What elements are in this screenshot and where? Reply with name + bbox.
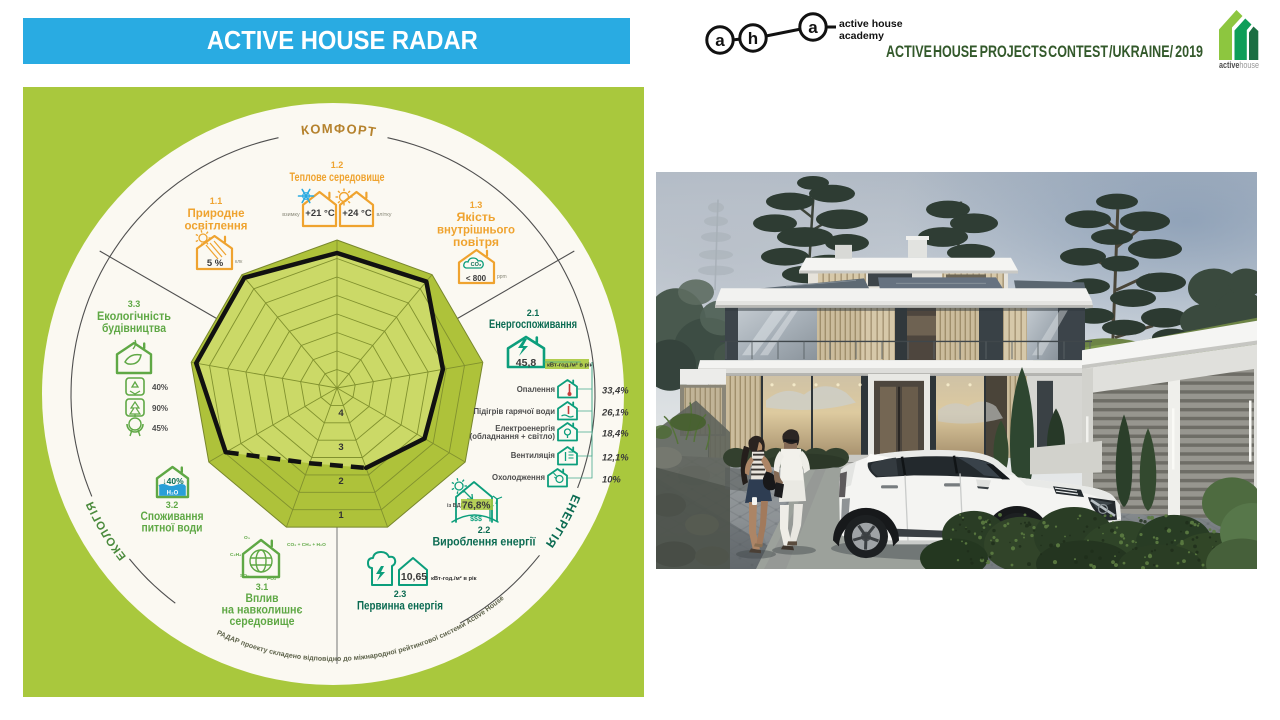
svg-text:10,65: 10,65 xyxy=(401,571,427,583)
svg-text:влітку: влітку xyxy=(377,212,392,218)
svg-text:O₃: O₃ xyxy=(244,535,250,541)
svg-text:3.3: 3.3 xyxy=(128,299,141,309)
svg-text:Охолодження: Охолодження xyxy=(492,473,545,482)
svg-text:клк: клк xyxy=(235,259,243,265)
svg-text:3: 3 xyxy=(338,442,343,453)
svg-text:↓40%: ↓40% xyxy=(162,476,184,486)
svg-text:90%: 90% xyxy=(152,404,168,413)
svg-text:active house: active house xyxy=(839,18,903,30)
svg-text:1.1: 1.1 xyxy=(210,196,223,206)
svg-text:activehouse: activehouse xyxy=(1219,60,1259,70)
svg-text:SO₂: SO₂ xyxy=(240,573,249,579)
svg-text:CO₂: CO₂ xyxy=(471,262,482,268)
svg-text:45,8: 45,8 xyxy=(516,357,537,369)
svg-text:1: 1 xyxy=(338,510,344,521)
svg-text:a: a xyxy=(808,18,818,37)
svg-text:40%: 40% xyxy=(152,383,168,392)
svg-text:2.3: 2.3 xyxy=(394,589,407,599)
svg-text:H₂O: H₂O xyxy=(167,491,179,497)
svg-text:1.3: 1.3 xyxy=(470,200,483,210)
svg-text:Вироблення енергії: Вироблення енергії xyxy=(433,537,537,549)
svg-text:3.1: 3.1 xyxy=(256,582,269,592)
svg-text:C₂H₄: C₂H₄ xyxy=(230,552,242,558)
svg-text:будівництва: будівництва xyxy=(102,323,167,335)
svg-text:Природне: Природне xyxy=(188,208,245,220)
svg-text:3.2: 3.2 xyxy=(166,500,179,510)
svg-text:ACTIVE HOUSE PROJECTS CONTEST: ACTIVE HOUSE PROJECTS CONTEST /UKRAINE/ … xyxy=(886,43,1203,61)
svg-text:12,1%: 12,1% xyxy=(602,452,629,463)
svg-text:5 %: 5 % xyxy=(207,258,224,269)
svg-text:10%: 10% xyxy=(602,474,621,485)
svg-text:ppm: ppm xyxy=(497,274,507,280)
svg-text:Енергоспоживання: Енергоспоживання xyxy=(489,319,577,331)
svg-text:(обладнання + світло): (обладнання + світло) xyxy=(470,432,556,441)
svg-text:Якість: Якість xyxy=(457,212,496,224)
svg-text:повітря: повітря xyxy=(453,237,499,249)
svg-text:кВт-год./м² в рік: кВт-год./м² в рік xyxy=(547,362,593,369)
svg-text:academy: academy xyxy=(839,30,884,42)
svg-text:Первинна енергія: Первинна енергія xyxy=(357,601,443,613)
svg-text:Опалення: Опалення xyxy=(517,385,555,394)
svg-text:+24 °C: +24 °C xyxy=(342,208,372,219)
svg-text:33,4%: 33,4% xyxy=(602,385,629,396)
svg-text:76,8%: 76,8% xyxy=(462,501,490,512)
svg-text:45%: 45% xyxy=(152,424,168,433)
svg-text:Споживання: Споживання xyxy=(141,511,204,523)
svg-text:Вентиляція: Вентиляція xyxy=(511,451,555,460)
svg-text:a: a xyxy=(715,31,725,50)
svg-text:$$$: $$$ xyxy=(470,516,482,523)
svg-text:питної води: питної води xyxy=(142,523,203,535)
svg-text:Теплове середовище: Теплове середовище xyxy=(290,172,385,184)
svg-text:1.2: 1.2 xyxy=(331,160,344,170)
svg-text:+21 °C: +21 °C xyxy=(305,208,335,219)
svg-text:< 800: < 800 xyxy=(466,274,487,283)
svg-text:2.1: 2.1 xyxy=(527,308,540,318)
svg-text:освітлення: освітлення xyxy=(185,221,248,233)
svg-text:внутрішнього: внутрішнього xyxy=(437,225,515,237)
svg-text:4: 4 xyxy=(338,408,344,419)
svg-text:Вплив: Вплив xyxy=(246,593,279,605)
svg-text:h: h xyxy=(748,29,758,48)
svg-text:кВт-год./м² в рік: кВт-год./м² в рік xyxy=(431,575,477,582)
svg-text:18,4%: 18,4% xyxy=(602,428,629,439)
svg-text:CO₂ + CH₄ + H₂O: CO₂ + CH₄ + H₂O xyxy=(287,542,326,548)
svg-text:взимку: взимку xyxy=(282,212,300,218)
svg-text:2: 2 xyxy=(338,476,343,487)
svg-text:26,1%: 26,1% xyxy=(601,407,629,418)
svg-text:PO₄: PO₄ xyxy=(267,576,277,582)
svg-text:2.2: 2.2 xyxy=(478,525,491,535)
svg-text:на навколишнє: на навколишнє xyxy=(222,605,304,617)
svg-text:Екологічність: Екологічність xyxy=(97,311,171,323)
svg-text:середовище: середовище xyxy=(230,616,295,628)
svg-text:Підігрів гарячої води: Підігрів гарячої води xyxy=(473,407,555,416)
